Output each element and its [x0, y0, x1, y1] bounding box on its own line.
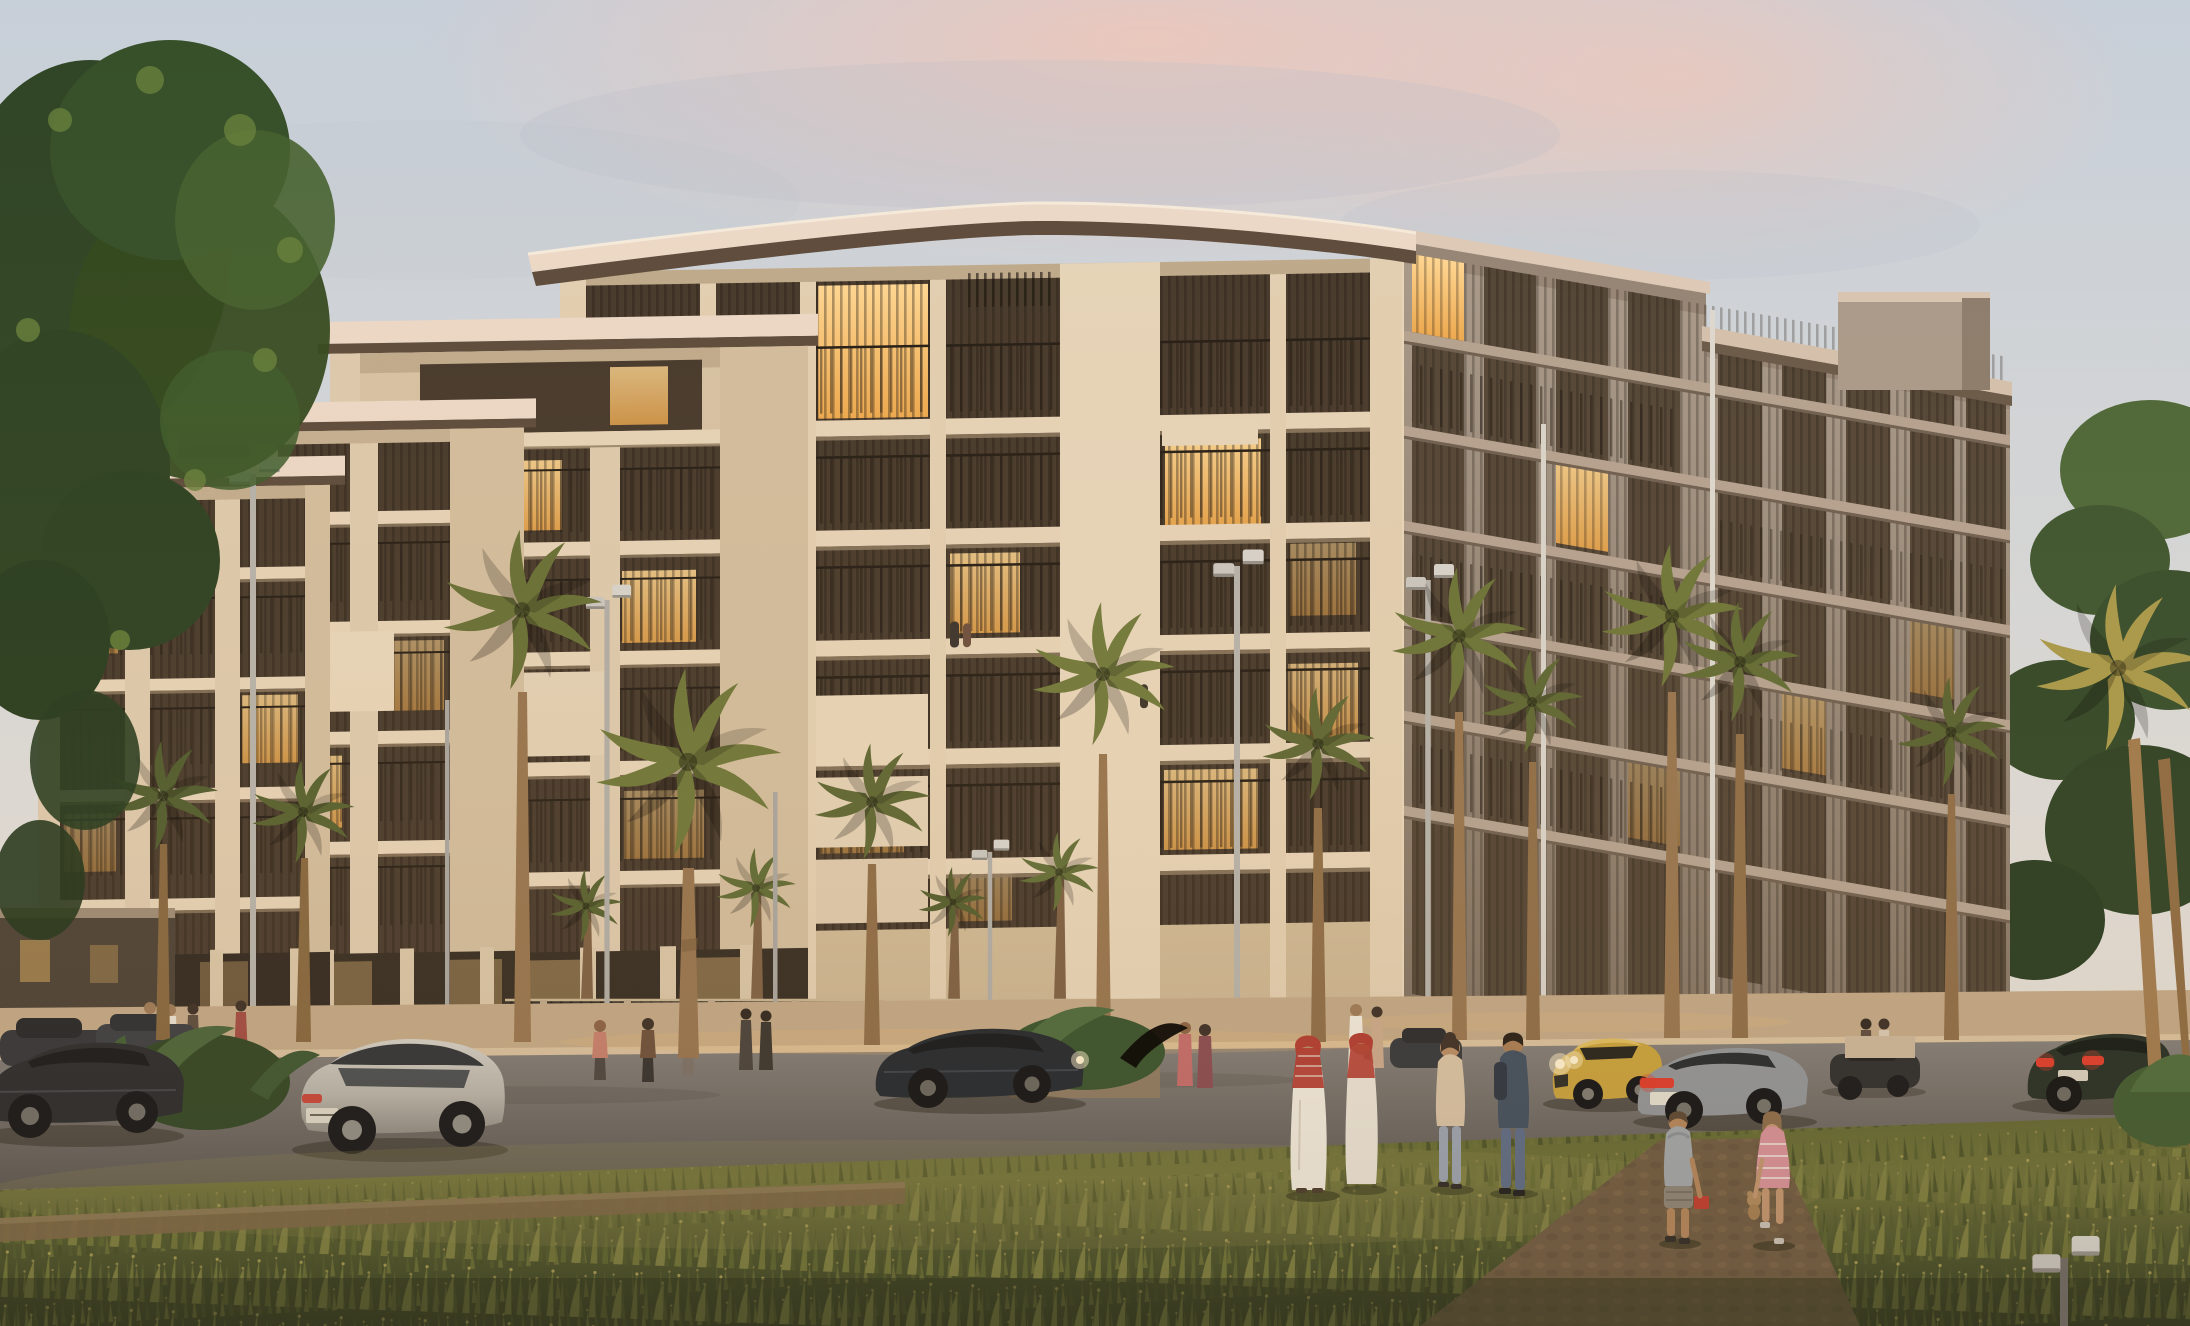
rendering-canvas: Photorealistic dusk rendering of a moder… [0, 0, 2190, 1326]
warm-atmosphere-overlay [0, 0, 2190, 1326]
scene-svg: Residential complex at dusk Photorealist… [0, 0, 2190, 1326]
